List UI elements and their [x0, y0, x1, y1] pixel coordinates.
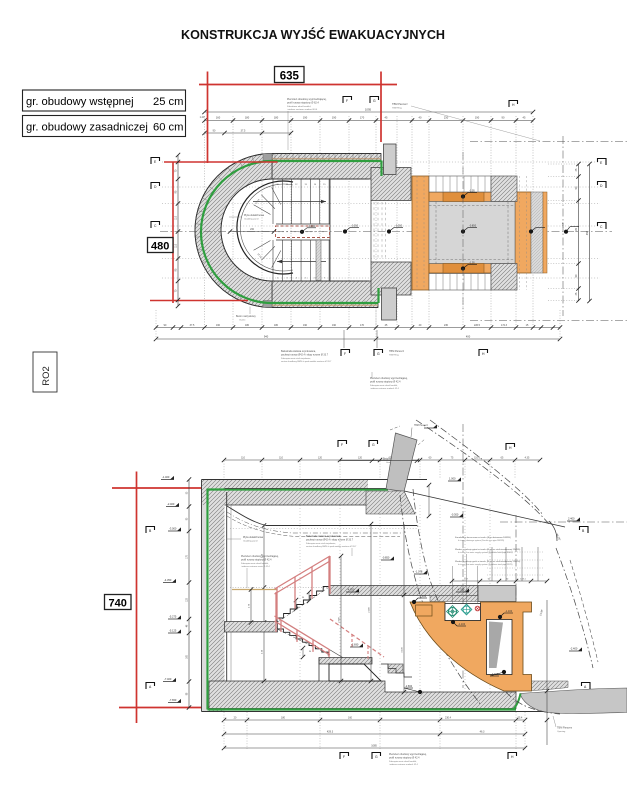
- svg-text:F: F: [341, 443, 343, 447]
- svg-text:In tunnel drainage system (Dur: In tunnel drainage system (Durafix iron …: [458, 539, 504, 542]
- svg-text:-7.650: -7.650: [169, 698, 177, 702]
- svg-text:gr. obudowy zasadniczej: gr. obudowy zasadniczej: [26, 122, 148, 134]
- svg-text:-1.400: -1.400: [162, 475, 170, 479]
- svg-text:60 cm: 60 cm: [153, 122, 183, 134]
- svg-text:RO2: RO2: [41, 366, 52, 386]
- svg-text:3.100: 3.100: [401, 646, 403, 652]
- svg-text:160: 160: [216, 116, 221, 120]
- svg-text:1095: 1095: [365, 108, 372, 112]
- svg-text:Płyta okładzinowa: Płyta okładzinowa: [243, 536, 264, 539]
- svg-text:2.400: 2.400: [568, 517, 575, 521]
- svg-text:190: 190: [303, 116, 308, 120]
- svg-text:1.20: 1.20: [200, 116, 205, 119]
- svg-text:Wodna instalacja gaśń w tunelu: Wodna instalacja gaśń w tunelu, (Rura ze…: [455, 560, 521, 563]
- svg-text:-1.100: -1.100: [505, 610, 513, 613]
- svg-text:F: F: [346, 99, 348, 103]
- svg-text:profil rurowy stępiony Ø 42.4: profil rurowy stępiony Ø 42.4: [241, 558, 272, 561]
- svg-text:170: 170: [360, 324, 365, 327]
- svg-text:-2.400: -2.400: [570, 647, 578, 651]
- svg-text:180: 180: [281, 716, 286, 719]
- svg-text:profil rurowy stępiony Ø 42.4: profil rurowy stępiony Ø 42.4: [370, 380, 401, 383]
- svg-text:458: 458: [586, 230, 589, 235]
- svg-text:TBM Pancerz: TBM Pancerz: [414, 424, 429, 427]
- svg-text:Beton natryskowy: Beton natryskowy: [236, 315, 256, 318]
- svg-text:Cladding panel: Cladding panel: [244, 219, 259, 221]
- svg-text:2.400: 2.400: [368, 606, 370, 612]
- svg-text:profil rurowy stępiony Ø 62.4: profil rurowy stępiony Ø 62.4: [287, 101, 319, 104]
- svg-text:In tunnel fire water supply sy: In tunnel fire water supply system (Stai…: [458, 563, 513, 566]
- svg-text:110.6: 110.6: [474, 456, 480, 459]
- svg-text:-0.000: -0.000: [308, 225, 316, 228]
- svg-text:zestaw handlowy BMS iii spod w: zestaw handlowy BMS iii spod wodoki zawó…: [281, 360, 332, 363]
- svg-text:TBM Ring: TBM Ring: [389, 355, 400, 357]
- svg-text:TBM Pancerz: TBM Pancerz: [392, 102, 408, 106]
- svg-text:-2.690: -2.690: [405, 685, 413, 688]
- svg-text:+1.30: +1.30: [563, 221, 565, 227]
- svg-text:gr. obudowy wstępnej: gr. obudowy wstępnej: [26, 96, 134, 108]
- svg-text:180: 180: [274, 116, 279, 120]
- svg-text:-2.400: -2.400: [167, 502, 175, 506]
- svg-text:KONSTRUKCJA WYJŚĆ EWAKUACYJNYC: KONSTRUKCJA WYJŚĆ EWAKUACYJNYCH: [181, 27, 445, 42]
- svg-text:-1.100: -1.100: [419, 595, 427, 598]
- svg-text:zestaw handlowy BMS iii spod w: zestaw handlowy BMS iii spod wodoki zawó…: [306, 545, 357, 548]
- svg-text:G: G: [373, 99, 376, 103]
- svg-text:4.35: 4.35: [525, 456, 530, 459]
- svg-text:110: 110: [279, 456, 283, 459]
- svg-text:940: 940: [264, 334, 269, 338]
- svg-text:-5.275: -5.275: [169, 615, 177, 619]
- svg-text:740: 740: [109, 598, 127, 610]
- svg-text:-1.078: -1.078: [415, 570, 423, 574]
- svg-text:G: G: [377, 352, 380, 356]
- svg-text:190: 190: [303, 324, 308, 327]
- svg-text:-5.125: -5.125: [169, 629, 177, 633]
- svg-text:110: 110: [174, 215, 177, 219]
- svg-text:37.5: 37.5: [241, 129, 246, 132]
- svg-text:-4.350: -4.350: [347, 588, 355, 592]
- svg-text:Zabezpieczenie stali niejadowi: Zabezpieczenie stali niejadowie,: [281, 357, 311, 360]
- svg-text:1.000: 1.000: [449, 477, 456, 481]
- svg-text:480: 480: [151, 241, 169, 253]
- svg-text:-4.350: -4.350: [164, 578, 172, 582]
- svg-text:230: 230: [444, 324, 449, 327]
- svg-text:TBM Pancerz: TBM Pancerz: [557, 727, 573, 730]
- svg-text:170: 170: [360, 116, 365, 120]
- svg-text:120: 120: [358, 456, 363, 459]
- svg-text:i widzew zestawu zemłacił 63.4: i widzew zestawu zemłacił 63.4: [287, 108, 318, 111]
- svg-text:190: 190: [332, 324, 337, 327]
- svg-text:profil rurowy stępiony Ø 42.4: profil rurowy stępiony Ø 42.4: [389, 756, 420, 759]
- svg-text:110: 110: [174, 243, 177, 247]
- svg-text:-0.050: -0.050: [351, 225, 359, 228]
- svg-text:-1.100: -1.100: [458, 623, 466, 626]
- svg-text:190: 190: [475, 116, 480, 120]
- svg-text:230.4: 230.4: [445, 716, 452, 719]
- svg-text:180: 180: [274, 324, 279, 327]
- svg-text:160: 160: [348, 716, 353, 719]
- svg-text:Opening: Opening: [557, 731, 566, 733]
- svg-text:160: 160: [216, 324, 221, 327]
- svg-text:Płyta okładzinowa: Płyta okładzinowa: [244, 214, 265, 217]
- svg-text:Zabezpieczenie obud handluł,: Zabezpieczenie obud handluł,: [241, 563, 269, 565]
- svg-text:226.5: 226.5: [474, 324, 481, 327]
- svg-text:pochwyt rurowy Ø42.4 i słupy r: pochwyt rurowy Ø42.4 i słupy rurowe Ø 33…: [281, 353, 329, 356]
- svg-text:25.4: 25.4: [518, 716, 523, 719]
- svg-text:225: 225: [575, 227, 578, 232]
- svg-text:190: 190: [332, 116, 337, 120]
- svg-text:F: F: [343, 755, 345, 759]
- svg-text:Cladding panel: Cladding panel: [243, 541, 258, 543]
- svg-text:Zabezpieczenie stali niejadowi: Zabezpieczenie stali niejadowie,: [306, 542, 336, 545]
- svg-text:120: 120: [318, 456, 323, 459]
- svg-text:180: 180: [245, 116, 250, 120]
- svg-text:-4.350: -4.350: [457, 588, 465, 592]
- svg-text:Wodna instalacja pytań w tunel: Wodna instalacja pytań w tunelu (Rura ze…: [455, 548, 521, 551]
- svg-text:G: G: [375, 755, 378, 759]
- svg-text:46.3: 46.3: [480, 730, 485, 733]
- svg-text:Zabudowa obud handluł,: Zabudowa obud handluł,: [287, 106, 311, 108]
- svg-text:1085: 1085: [371, 744, 377, 747]
- svg-text:-7.400: -7.400: [164, 677, 172, 681]
- svg-text:-0.050: -0.050: [395, 225, 403, 228]
- svg-text:180: 180: [245, 324, 250, 327]
- svg-text:Zabezpieczenie obud handluł,: Zabezpieczenie obud handluł,: [389, 761, 417, 763]
- svg-text:-2.200: -2.200: [491, 673, 499, 676]
- svg-text:-1.05: -1.05: [469, 262, 475, 265]
- svg-text:37.5: 37.5: [190, 324, 195, 327]
- svg-text:In tunnel fire water supply sy: In tunnel fire water supply system (Stai…: [458, 551, 513, 554]
- svg-text:-0.850: -0.850: [469, 225, 477, 228]
- svg-text:-1.05: -1.05: [469, 190, 475, 193]
- svg-text:429.3: 429.3: [327, 730, 334, 733]
- svg-text:pochwyt rurowy Ø42.4 i słupy r: pochwyt rurowy Ø42.4 i słupy rurowe Ø 33…: [306, 538, 354, 541]
- svg-text:110: 110: [241, 456, 245, 459]
- svg-text:TBM Ring: TBM Ring: [392, 108, 403, 110]
- svg-text:635: 635: [280, 71, 300, 83]
- svg-text:-2.690: -2.690: [351, 643, 359, 647]
- svg-text:TBM Pancerz: TBM Pancerz: [389, 350, 405, 353]
- svg-text:400: 400: [466, 334, 471, 338]
- svg-text:2.690: 2.690: [338, 616, 340, 622]
- svg-text:i widzew zestawu zemłacił 42.4: i widzew zestawu zemłacił 42.4: [370, 387, 400, 390]
- svg-text:G: G: [372, 443, 375, 447]
- svg-text:-0.300: -0.300: [451, 513, 459, 517]
- svg-text:i widzew zestawu armia Ø 42.4: i widzew zestawu armia Ø 42.4: [241, 565, 270, 568]
- svg-text:Kanalizacja deszczowa w tunelu: Kanalizacja deszczowa w tunelu (Rura bet…: [455, 536, 511, 539]
- svg-text:172.3: 172.3: [501, 324, 508, 327]
- svg-text:-0.850: -0.850: [382, 556, 390, 560]
- svg-text:25 cm: 25 cm: [153, 96, 183, 108]
- svg-text:F: F: [344, 352, 346, 356]
- svg-text:i widzew zestawu zemłacił 42.4: i widzew zestawu zemłacił 42.4: [389, 763, 419, 766]
- svg-text:Zabezpieczenie obud handluł,: Zabezpieczenie obud handluł,: [370, 385, 398, 387]
- svg-text:103.1: 103.1: [520, 578, 526, 580]
- svg-text:Gunite: Gunite: [239, 319, 246, 322]
- svg-text:-3.000: -3.000: [169, 527, 177, 531]
